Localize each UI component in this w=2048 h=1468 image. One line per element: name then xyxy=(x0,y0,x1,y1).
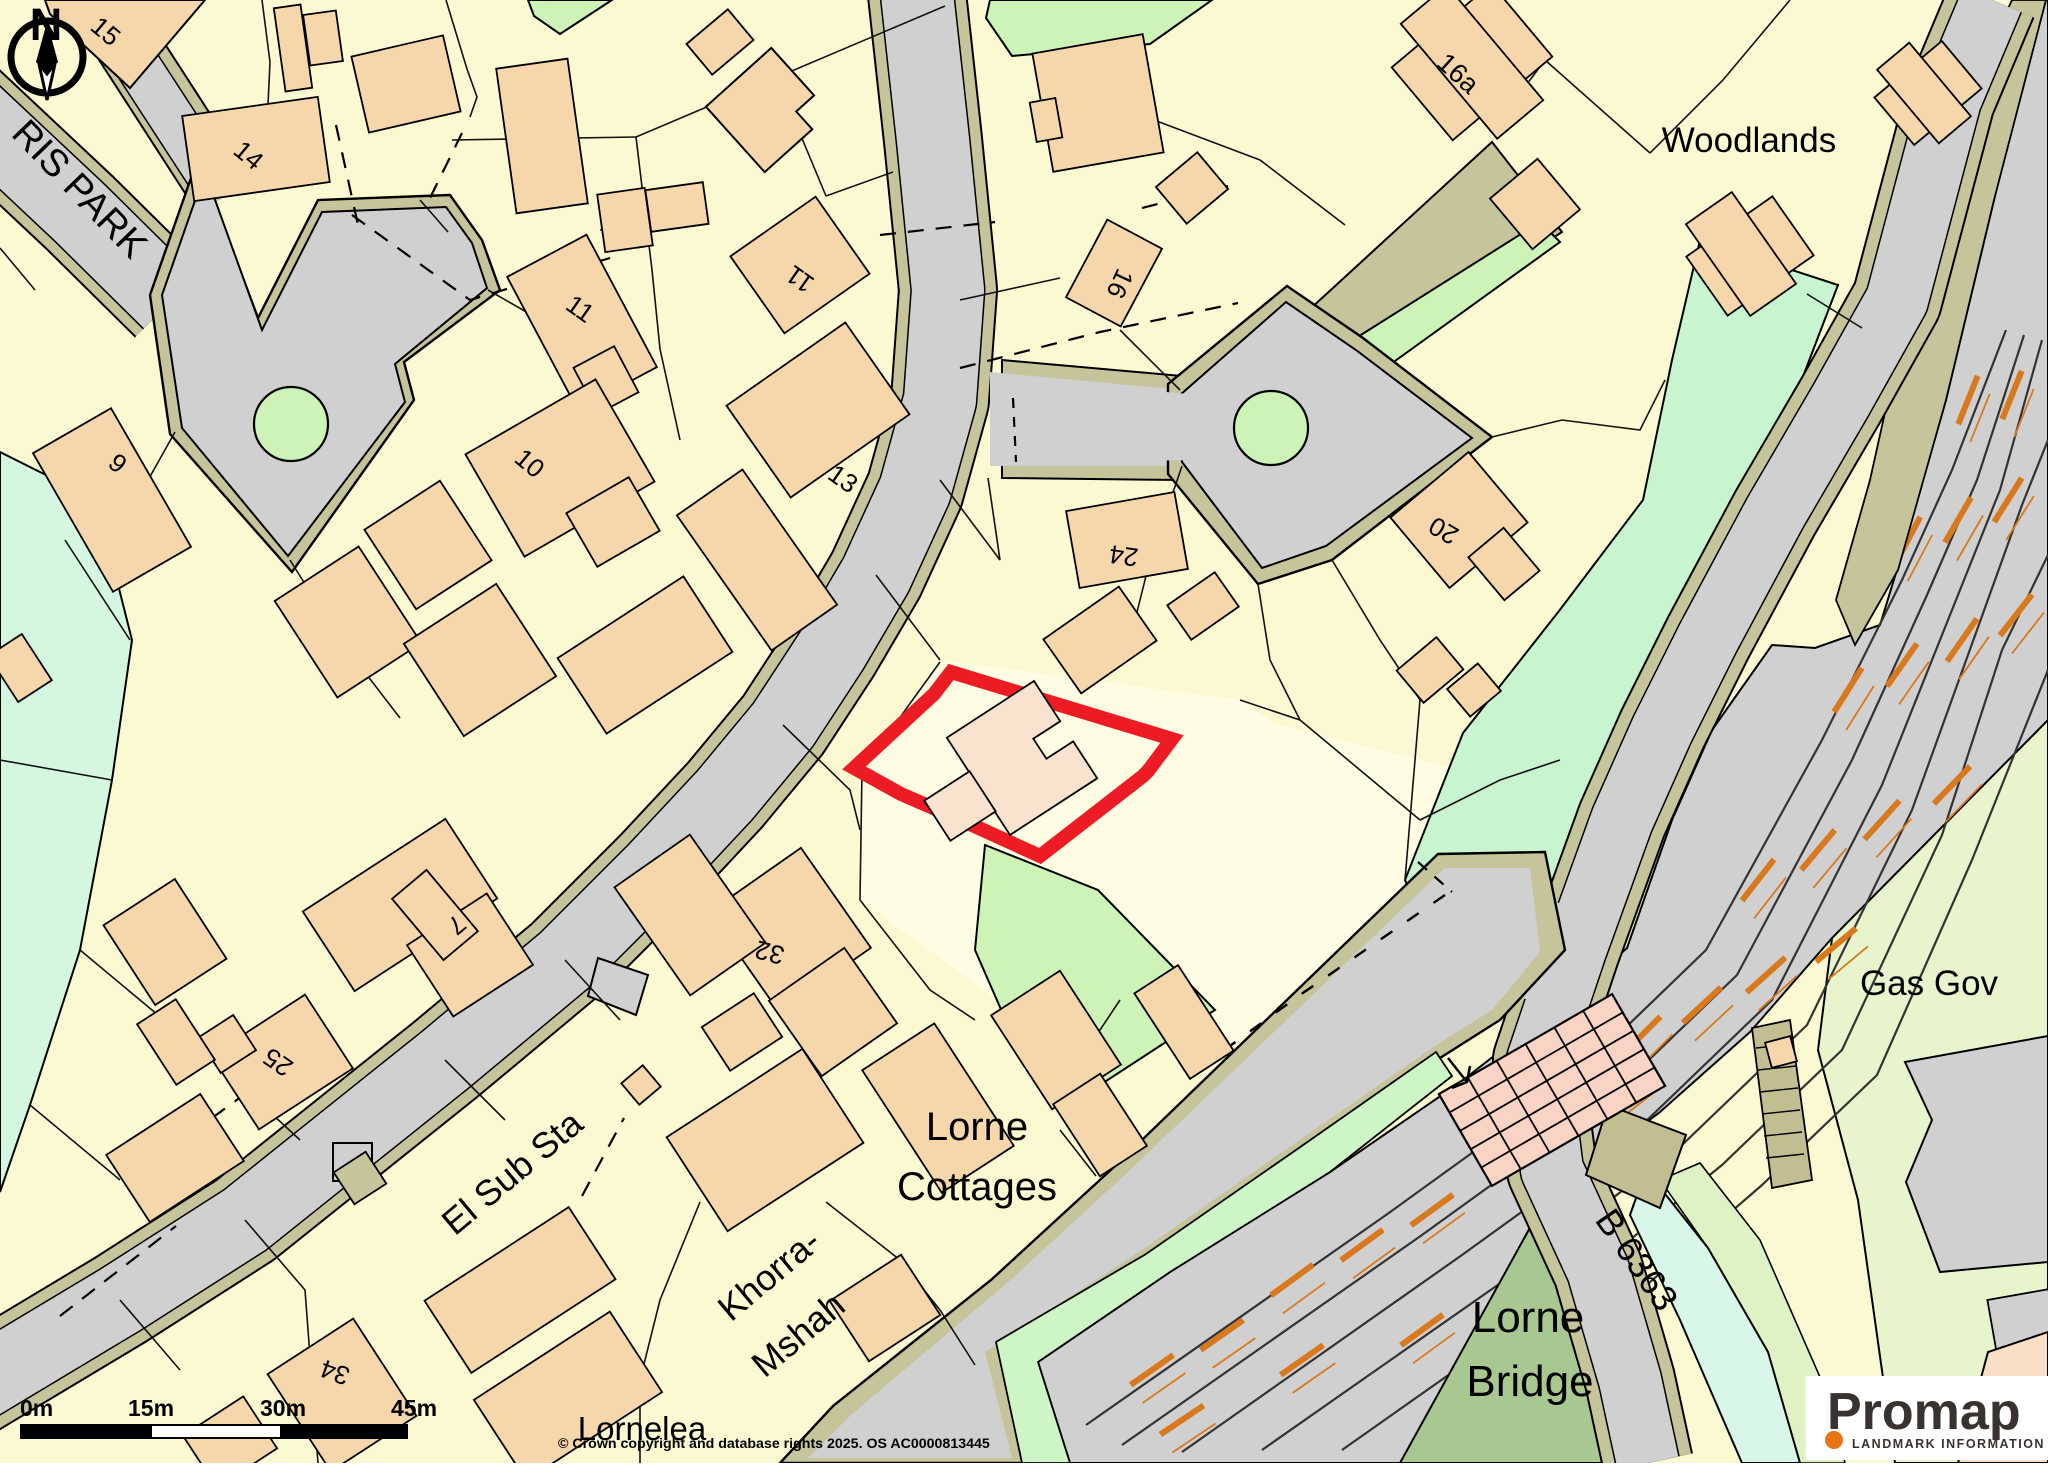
svg-text:24: 24 xyxy=(1107,539,1140,573)
svg-text:Bridge: Bridge xyxy=(1466,1357,1593,1406)
svg-text:45m: 45m xyxy=(391,1395,437,1421)
svg-text:0m: 0m xyxy=(20,1395,53,1421)
svg-text:30m: 30m xyxy=(260,1395,306,1421)
svg-text:Gas Gov: Gas Gov xyxy=(1860,964,1999,1003)
svg-text:Promap: Promap xyxy=(1827,1383,2021,1441)
svg-text:Lorne: Lorne xyxy=(926,1105,1028,1149)
svg-text:© Crown copyright and database: © Crown copyright and database rights 20… xyxy=(558,1436,990,1452)
svg-text:Cottages: Cottages xyxy=(897,1165,1057,1209)
svg-text:Lorne: Lorne xyxy=(1472,1293,1585,1342)
svg-text:Woodlands: Woodlands xyxy=(1662,121,1836,160)
svg-text:15m: 15m xyxy=(128,1395,174,1421)
svg-text:LANDMARK INFORMATION: LANDMARK INFORMATION xyxy=(1852,1437,2045,1451)
